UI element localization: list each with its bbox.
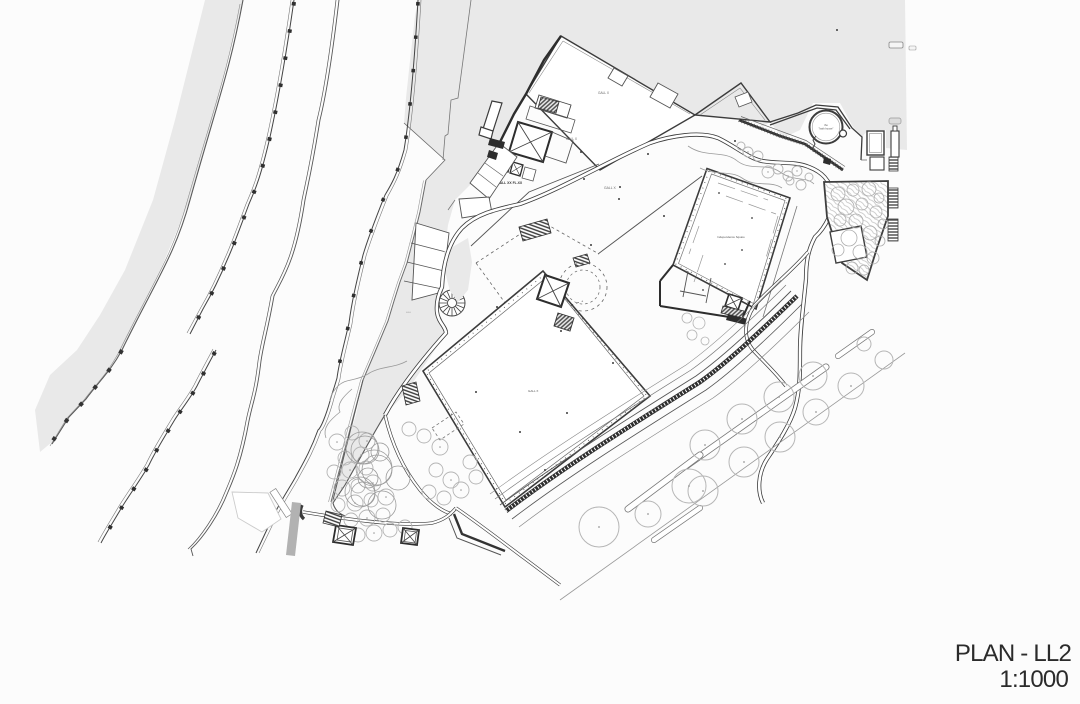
svg-text:PLAN - LL2: PLAN - LL2 — [955, 640, 1072, 667]
svg-text:eee: eee — [406, 310, 411, 314]
svg-text:GALL X: GALL X — [528, 389, 538, 393]
svg-text:the: the — [824, 123, 828, 127]
svg-text:GALL X: GALL X — [604, 186, 616, 190]
svg-text:Independence Square: Independence Square — [717, 235, 745, 239]
svg-text:GALL X: GALL X — [598, 91, 610, 95]
svg-text:GALL X: GALL X — [566, 137, 578, 141]
svg-text:1:1000: 1:1000 — [999, 666, 1068, 693]
svg-text:"bath house": "bath house" — [819, 127, 834, 131]
